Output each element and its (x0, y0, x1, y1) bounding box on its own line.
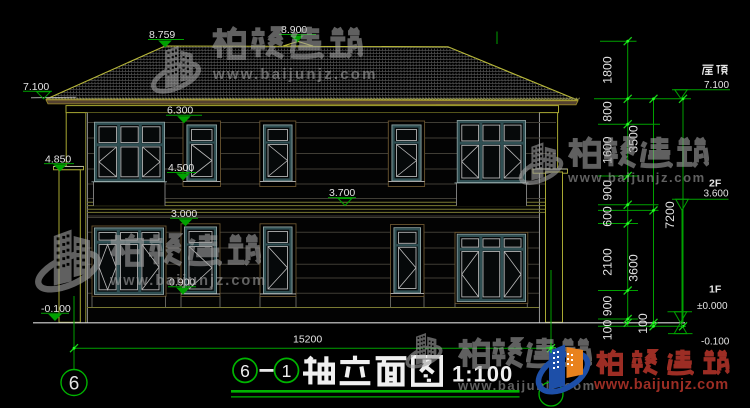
svg-text:-0.100: -0.100 (701, 337, 730, 348)
svg-text:www.baijunjz.com: www.baijunjz.com (593, 377, 729, 393)
svg-text:100: 100 (601, 320, 615, 341)
svg-text:1F: 1F (709, 284, 722, 296)
svg-text:6: 6 (69, 374, 80, 395)
svg-text:±0.000: ±0.000 (697, 301, 728, 312)
svg-text:1800: 1800 (601, 56, 615, 84)
svg-text:www.baijunjz.com: www.baijunjz.com (567, 170, 706, 185)
svg-text:6: 6 (240, 361, 250, 381)
svg-text:1: 1 (282, 361, 292, 381)
svg-text:7200: 7200 (663, 201, 677, 229)
svg-text:www.baijunjz.com: www.baijunjz.com (109, 273, 267, 289)
svg-text:2100: 2100 (601, 248, 615, 276)
svg-text:800: 800 (601, 101, 615, 122)
svg-text:600: 600 (601, 206, 615, 227)
svg-text:900: 900 (601, 296, 615, 317)
svg-text:3600: 3600 (627, 254, 641, 282)
svg-text:3.600: 3.600 (704, 189, 729, 200)
svg-text:100: 100 (636, 313, 650, 334)
svg-text:www.baijunjz.com: www.baijunjz.com (212, 66, 378, 83)
svg-text:15200: 15200 (293, 334, 322, 346)
svg-text:6.300: 6.300 (167, 105, 193, 117)
